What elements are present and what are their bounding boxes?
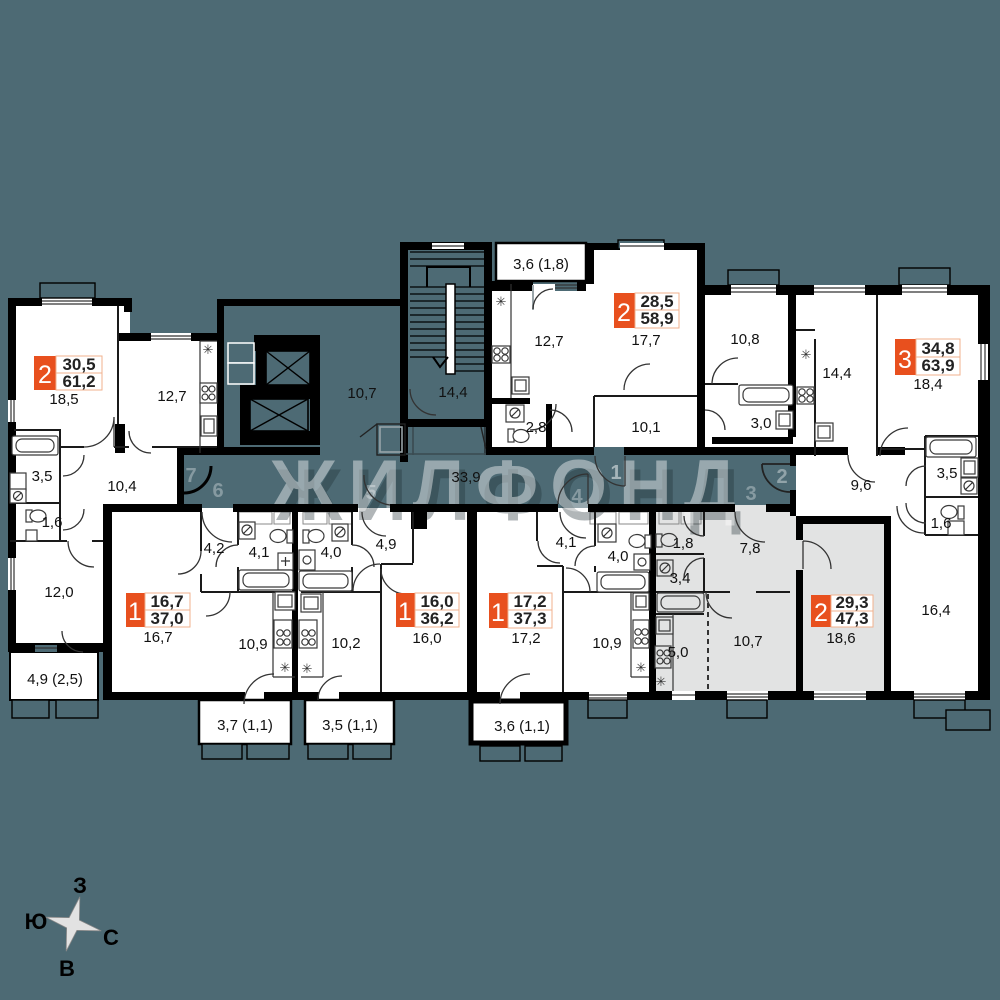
svg-text:✳: ✳ [203,342,214,357]
svg-text:2: 2 [776,466,787,488]
svg-text:ЖИЛФОНД: ЖИЛФОНД [269,446,747,527]
svg-text:1,8: 1,8 [673,535,694,552]
svg-text:17,2: 17,2 [511,630,540,647]
svg-text:2: 2 [814,599,828,627]
svg-text:4,9 (2,5): 4,9 (2,5) [27,671,83,688]
svg-text:3: 3 [898,346,912,374]
svg-text:1: 1 [128,598,142,626]
svg-text:61,2: 61,2 [62,372,95,391]
svg-text:47,3: 47,3 [835,609,868,628]
svg-text:9,6: 9,6 [851,477,872,494]
svg-text:2,8: 2,8 [526,419,547,436]
svg-text:2: 2 [38,361,52,389]
svg-text:1: 1 [610,462,621,484]
svg-text:17,7: 17,7 [631,332,660,349]
svg-text:12,0: 12,0 [44,584,73,601]
svg-text:16,0: 16,0 [412,630,441,647]
svg-text:3,0: 3,0 [751,415,772,432]
svg-text:18,4: 18,4 [913,376,942,393]
svg-text:4,9: 4,9 [376,536,397,553]
svg-text:✳: ✳ [302,661,313,676]
svg-text:10,9: 10,9 [592,635,621,652]
svg-text:✳: ✳ [656,674,667,689]
svg-text:✳: ✳ [801,347,812,362]
svg-text:4,1: 4,1 [249,544,270,561]
svg-text:4,0: 4,0 [321,544,342,561]
svg-text:✳: ✳ [636,660,647,675]
svg-text:4,2: 4,2 [204,540,225,557]
svg-text:14,4: 14,4 [822,365,851,382]
svg-text:10,2: 10,2 [331,635,360,652]
svg-text:4,0: 4,0 [608,548,629,565]
svg-text:3,5: 3,5 [937,465,958,482]
svg-text:3,6 (1,8): 3,6 (1,8) [513,256,569,273]
svg-text:✳: ✳ [496,294,507,309]
svg-text:1: 1 [398,598,412,626]
svg-text:3: 3 [745,483,756,505]
svg-text:36,2: 36,2 [420,609,453,628]
svg-text:14,4: 14,4 [438,384,467,401]
svg-text:7,8: 7,8 [740,540,761,557]
svg-text:✳: ✳ [280,660,291,675]
svg-text:6: 6 [212,480,223,502]
svg-text:10,7: 10,7 [733,633,762,650]
svg-text:58,9: 58,9 [640,309,673,328]
svg-text:2: 2 [617,299,631,327]
svg-text:1,6: 1,6 [42,514,63,531]
svg-text:18,6: 18,6 [826,630,855,647]
svg-text:37,3: 37,3 [513,609,546,628]
svg-text:3,5 (1,1): 3,5 (1,1) [322,717,378,734]
svg-text:63,9: 63,9 [921,356,954,375]
svg-text:12,7: 12,7 [534,333,563,350]
svg-text:В: В [59,956,75,981]
svg-text:З: З [73,873,87,898]
svg-text:3,5: 3,5 [32,468,53,485]
svg-text:16,4: 16,4 [921,602,950,619]
svg-text:1,6: 1,6 [931,515,952,532]
svg-text:Ю: Ю [25,909,48,934]
svg-text:33,9: 33,9 [451,469,480,486]
svg-text:4: 4 [571,486,583,508]
svg-text:3,6 (1,1): 3,6 (1,1) [494,718,550,735]
svg-text:1: 1 [491,599,505,627]
svg-text:10,8: 10,8 [730,331,759,348]
svg-text:37,0: 37,0 [150,609,183,628]
svg-text:10,7: 10,7 [347,385,376,402]
svg-text:3,7 (1,1): 3,7 (1,1) [217,717,273,734]
svg-text:С: С [103,925,119,950]
svg-text:10,9: 10,9 [238,636,267,653]
svg-text:18,5: 18,5 [49,391,78,408]
svg-text:10,4: 10,4 [107,478,136,495]
svg-text:3,4: 3,4 [670,570,691,587]
svg-text:7: 7 [185,465,196,487]
svg-text:16,7: 16,7 [143,629,172,646]
svg-text:5: 5 [365,482,376,504]
svg-text:5,0: 5,0 [668,644,689,661]
svg-text:12,7: 12,7 [157,388,186,405]
svg-text:10,1: 10,1 [631,419,660,436]
svg-text:4,1: 4,1 [556,534,577,551]
